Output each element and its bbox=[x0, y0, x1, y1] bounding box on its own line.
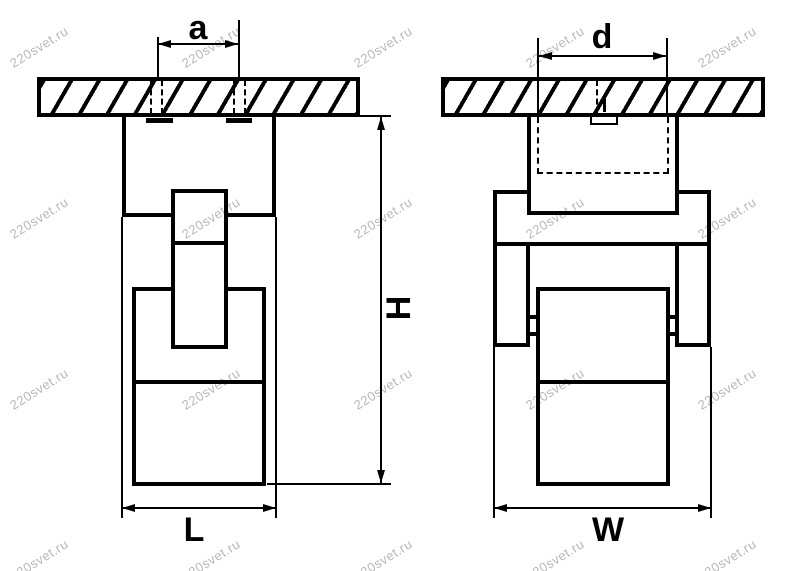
dim-label-d: d bbox=[572, 18, 632, 56]
dim-d-arrow-left bbox=[539, 52, 552, 60]
canopy-left-edge bbox=[122, 115, 126, 217]
watermark: 220svet.ru bbox=[695, 23, 759, 71]
mount-clip bbox=[146, 118, 173, 123]
watermark: 220svet.ru bbox=[695, 536, 759, 571]
dim-label-a: a bbox=[168, 9, 228, 47]
yoke-right-edge bbox=[707, 190, 711, 246]
stem-bottom-edge bbox=[171, 345, 228, 349]
cup-bottom-edge bbox=[527, 211, 679, 215]
ceiling-slab-front bbox=[37, 77, 360, 117]
watermark: 220svet.ru bbox=[351, 23, 415, 71]
cup-right-edge bbox=[675, 117, 679, 215]
watermark: 220svet.ru bbox=[351, 365, 415, 413]
watermark: 220svet.ru bbox=[695, 194, 759, 242]
dim-w-arrow-left bbox=[494, 504, 507, 512]
stem-right-edge bbox=[224, 189, 228, 349]
dim-d-extension-right bbox=[666, 38, 668, 117]
dim-h-reference-bottom bbox=[267, 483, 391, 485]
watermark: 220svet.ru bbox=[695, 365, 759, 413]
screw-hidden-line bbox=[150, 80, 152, 114]
dim-d-extension-left bbox=[537, 38, 539, 117]
yoke-left-edge bbox=[493, 190, 497, 246]
screw-hidden-line bbox=[596, 80, 598, 114]
dim-h-arrow-top bbox=[377, 117, 385, 130]
dim-l-extension-left bbox=[121, 217, 123, 518]
cup-left-edge bbox=[527, 117, 531, 215]
dim-l-arrow-left bbox=[122, 504, 135, 512]
dim-w-line bbox=[494, 507, 711, 509]
watermark: 220svet.ru bbox=[351, 194, 415, 242]
dim-w-extension-right bbox=[710, 347, 712, 518]
head-front-top-edge bbox=[224, 287, 266, 291]
dim-l-arrow-right bbox=[263, 504, 276, 512]
head-side-right-edge bbox=[666, 287, 670, 486]
recessed-housing-hidden bbox=[537, 117, 669, 174]
dimension-drawing: 220svet.ru 220svet.ru 220svet.ru 220svet… bbox=[0, 0, 803, 571]
arm-right-bottom-edge bbox=[675, 343, 711, 347]
arm-left-bottom-edge bbox=[493, 343, 530, 347]
screw-mark bbox=[603, 96, 606, 112]
screw-hidden-line bbox=[233, 80, 235, 114]
dim-d-arrow-right bbox=[653, 52, 666, 60]
head-side-divider bbox=[536, 380, 670, 384]
stem-left-edge bbox=[171, 189, 175, 349]
head-front-bottom-edge bbox=[132, 482, 266, 486]
head-side-top-edge bbox=[536, 287, 670, 291]
dim-l-line bbox=[122, 507, 276, 509]
watermark: 220svet.ru bbox=[179, 194, 243, 242]
dim-label-w: W bbox=[578, 511, 638, 549]
watermark: 220svet.ru bbox=[523, 194, 587, 242]
watermark: 220svet.ru bbox=[7, 23, 71, 71]
head-side-left-edge bbox=[536, 287, 540, 486]
yoke-top-edge bbox=[675, 190, 711, 194]
watermark: 220svet.ru bbox=[351, 536, 415, 571]
dim-a-extension-right bbox=[238, 20, 240, 77]
watermark: 220svet.ru bbox=[7, 194, 71, 242]
dim-l-extension-right bbox=[275, 217, 277, 518]
mount-tab bbox=[590, 117, 618, 125]
watermark: 220svet.ru bbox=[179, 365, 243, 413]
dim-h-arrow-bottom bbox=[377, 470, 385, 483]
yoke-top-edge bbox=[493, 190, 531, 194]
screw-hidden-line bbox=[161, 80, 163, 114]
stem-top-edge bbox=[171, 189, 228, 193]
watermark: 220svet.ru bbox=[7, 365, 71, 413]
stem-joint-line bbox=[171, 241, 228, 245]
head-front-right-edge bbox=[262, 287, 266, 486]
arm-right-outer-edge bbox=[707, 246, 711, 347]
mount-clip bbox=[226, 118, 252, 123]
watermark: 220svet.ru bbox=[7, 536, 71, 571]
dim-w-arrow-right bbox=[698, 504, 711, 512]
head-front-left-edge bbox=[132, 287, 136, 486]
head-front-top-edge bbox=[132, 287, 175, 291]
dim-label-l: L bbox=[164, 511, 224, 549]
canopy-right-edge bbox=[272, 115, 276, 217]
dim-h-reference-top bbox=[360, 115, 391, 117]
watermark: 220svet.ru bbox=[523, 365, 587, 413]
canopy-bottom-edge bbox=[122, 213, 175, 217]
arm-left-outer-edge bbox=[493, 246, 497, 347]
dim-label-h: H bbox=[381, 290, 417, 326]
canopy-bottom-edge bbox=[224, 213, 276, 217]
head-side-bottom-edge bbox=[536, 482, 670, 486]
dim-w-extension-left bbox=[493, 347, 495, 518]
head-front-divider bbox=[132, 380, 266, 384]
screw-hidden-line bbox=[244, 80, 246, 114]
